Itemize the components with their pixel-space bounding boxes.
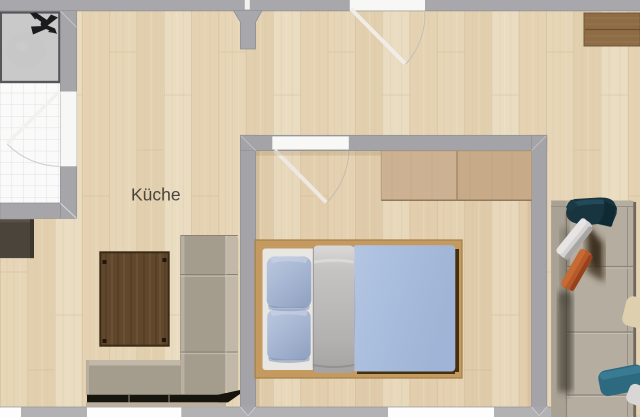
svg-text:Küche: Küche	[131, 185, 181, 205]
